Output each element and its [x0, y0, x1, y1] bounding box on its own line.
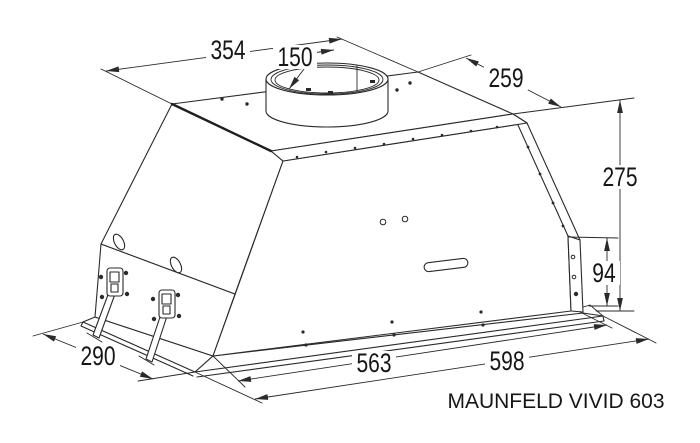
dim-body-width: 563	[356, 349, 391, 379]
screw-hole	[572, 275, 576, 279]
hood-dimension-drawing: 354 150 259 275 94 290 563 598 MAUNFELD …	[0, 0, 700, 443]
product-model-label: MAUNFELD VIVID 603	[447, 390, 664, 413]
screw-hole	[402, 216, 408, 222]
dim-flange-width: 598	[489, 347, 524, 377]
screw-hole	[380, 219, 386, 225]
dim-lower-body-height: 94	[592, 259, 615, 289]
dim-top-width: 354	[210, 36, 245, 66]
dim-top-depth: 259	[488, 64, 523, 94]
dim-total-height: 275	[602, 163, 637, 193]
dim-flange-depth: 290	[80, 342, 115, 372]
dim-duct-diameter: 150	[277, 43, 312, 73]
technical-drawing-page: 354 150 259 275 94 290 563 598 MAUNFELD …	[0, 0, 700, 443]
screw-hole	[571, 255, 575, 259]
